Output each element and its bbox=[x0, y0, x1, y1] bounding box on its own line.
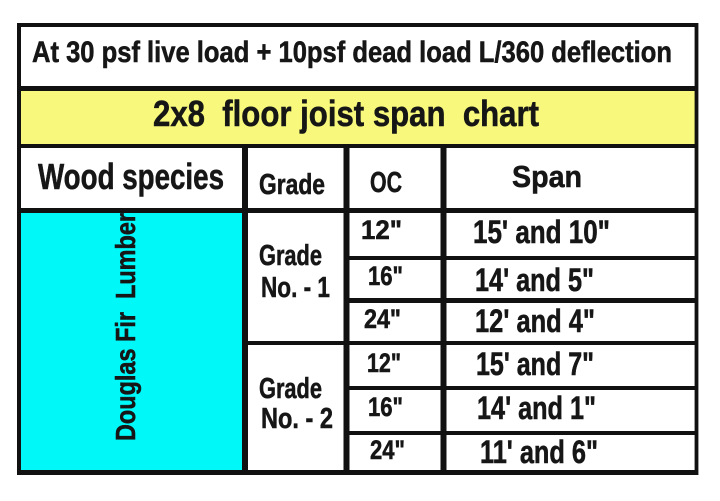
svg-text:2x8 floor joist span chart: 2x8 floor joist span chart bbox=[153, 93, 539, 134]
svg-text:14' and 5": 14' and 5" bbox=[475, 262, 594, 298]
svg-text:Grade: Grade bbox=[259, 169, 325, 201]
svg-text:12": 12" bbox=[367, 348, 401, 378]
svg-text:OC: OC bbox=[370, 167, 402, 199]
svg-text:14' and 1": 14' and 1" bbox=[477, 390, 596, 426]
svg-text:At 30 psf live load + 10psf de: At 30 psf live load + 10psf dead load L/… bbox=[32, 36, 672, 69]
svg-text:No. - 2: No. - 2 bbox=[261, 403, 333, 435]
svg-text:24": 24" bbox=[370, 435, 405, 465]
svg-text:15' and 7": 15' and 7" bbox=[476, 346, 594, 382]
svg-text:Wood species: Wood species bbox=[38, 156, 224, 197]
svg-text:11' and 6": 11' and 6" bbox=[480, 434, 598, 470]
svg-text:12": 12" bbox=[361, 215, 402, 245]
svg-text:12' and 4": 12' and 4" bbox=[475, 303, 595, 339]
svg-text:24": 24" bbox=[364, 304, 401, 334]
svg-text:Grade: Grade bbox=[259, 373, 322, 405]
svg-text:No. - 1: No. - 1 bbox=[261, 272, 330, 304]
svg-text:16": 16" bbox=[368, 392, 403, 422]
svg-text:Span: Span bbox=[512, 159, 582, 194]
svg-text:Grade: Grade bbox=[259, 240, 322, 272]
svg-text:16": 16" bbox=[368, 261, 403, 291]
svg-text:Douglas Fir Lumber: Douglas Fir Lumber bbox=[110, 213, 141, 441]
svg-text:15' and 10": 15' and 10" bbox=[473, 214, 610, 250]
